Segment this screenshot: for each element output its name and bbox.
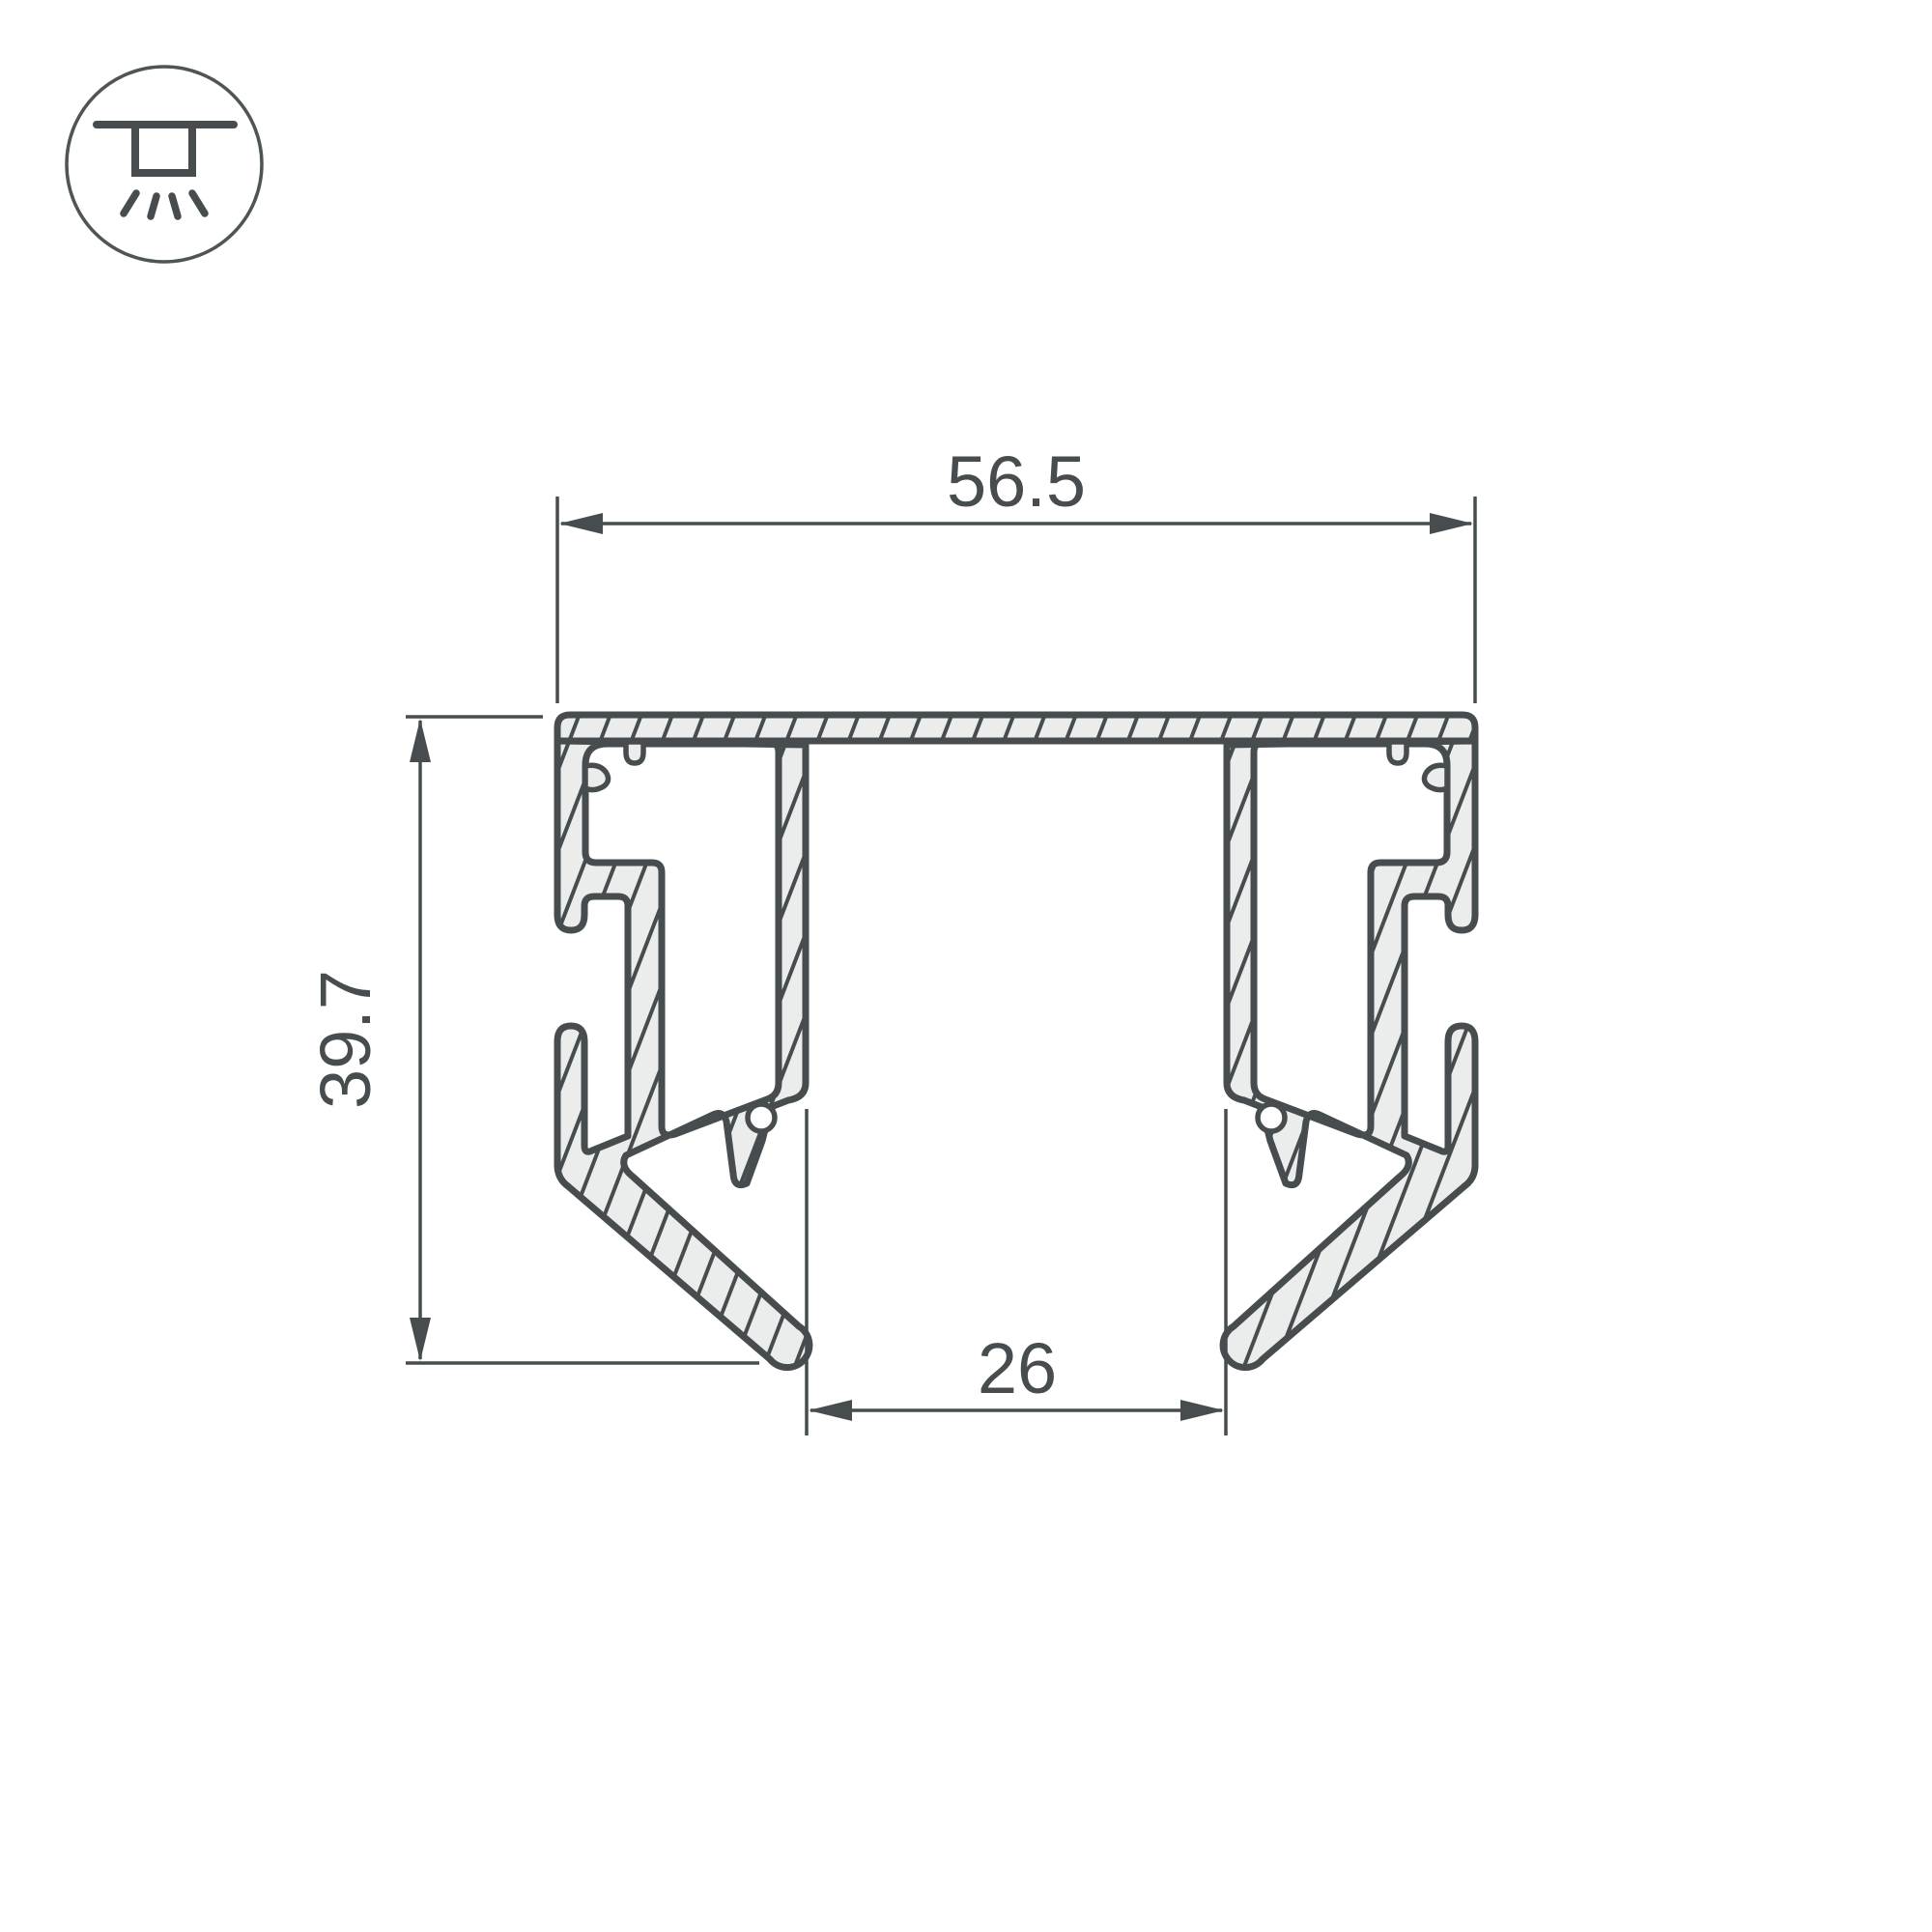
arrowhead-down-icon xyxy=(410,1318,431,1361)
arrowhead-right-icon xyxy=(1180,1400,1224,1421)
dimension-width-top xyxy=(557,497,1475,703)
dimension-label-width-top: 56.5 xyxy=(947,441,1086,522)
profile-right-assembly xyxy=(1223,741,1475,1368)
ceiling-surface-mount-light-icon xyxy=(67,67,262,262)
icon-fixture-box xyxy=(135,127,192,173)
profile-cross-section xyxy=(557,715,1475,1368)
dimension-label-height-left: 39.7 xyxy=(305,970,385,1109)
profile-right-details xyxy=(1258,742,1447,1131)
arrowhead-up-icon xyxy=(410,719,431,762)
arrowhead-left-icon xyxy=(559,513,603,534)
profile-top-plate xyxy=(557,715,1475,741)
arrowhead-left-icon xyxy=(809,1400,852,1421)
dimension-label-bottom-inner-width: 26 xyxy=(978,1328,1057,1408)
technical-drawing-canvas: 56.5 39.7 26 xyxy=(0,0,1932,1932)
arrowhead-right-icon xyxy=(1430,513,1473,534)
icon-circle-border xyxy=(67,67,262,262)
profile-left-details xyxy=(585,742,775,1131)
drawing-page: 56.5 39.7 26 xyxy=(0,0,1932,1932)
icon-light-rays xyxy=(124,193,205,216)
profile-left-assembly xyxy=(557,741,810,1368)
